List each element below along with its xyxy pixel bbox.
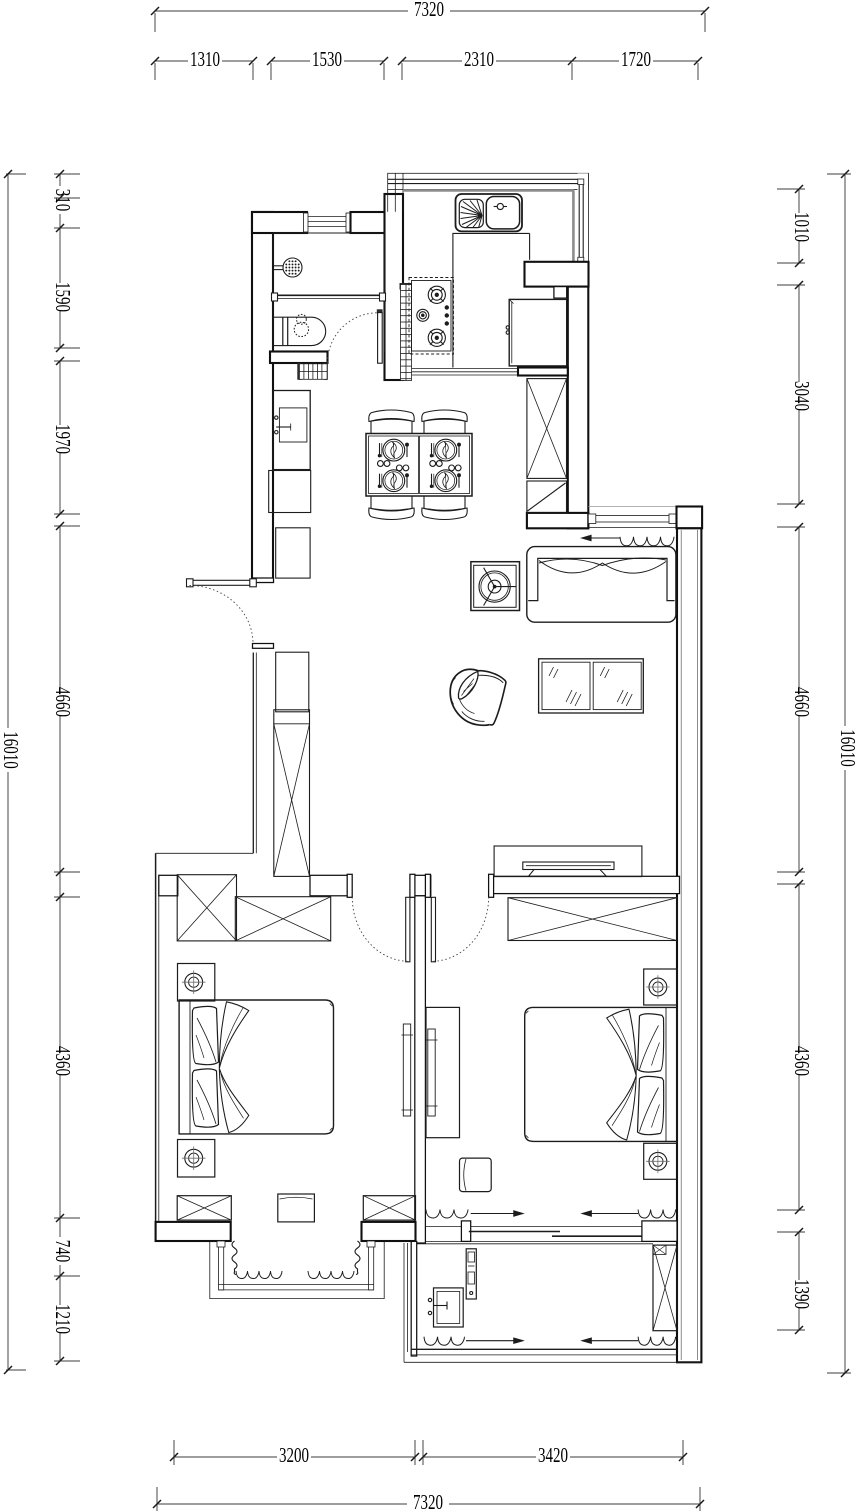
svg-text:1970: 1970 (51, 424, 75, 454)
svg-text:1720: 1720 (621, 47, 651, 71)
svg-text:3420: 3420 (538, 1443, 568, 1467)
svg-text:1390: 1390 (790, 1279, 814, 1309)
svg-text:1590: 1590 (51, 282, 75, 312)
svg-text:2310: 2310 (464, 47, 494, 71)
svg-text:1010: 1010 (790, 212, 814, 242)
svg-text:7320: 7320 (414, 0, 444, 21)
svg-text:1530: 1530 (312, 47, 342, 71)
svg-text:4660: 4660 (51, 687, 75, 717)
svg-text:1310: 1310 (190, 47, 220, 71)
svg-text:4360: 4360 (790, 1046, 814, 1076)
svg-text:4660: 4660 (790, 687, 814, 717)
svg-text:4360: 4360 (51, 1046, 75, 1076)
svg-text:310: 310 (51, 189, 75, 212)
svg-text:3040: 3040 (790, 381, 814, 411)
svg-text:16010: 16010 (836, 729, 860, 767)
svg-text:16010: 16010 (0, 731, 23, 769)
svg-text:7320: 7320 (413, 1490, 443, 1512)
svg-text:1210: 1210 (51, 1304, 75, 1334)
svg-text:740: 740 (51, 1240, 75, 1263)
svg-text:3200: 3200 (279, 1443, 309, 1467)
